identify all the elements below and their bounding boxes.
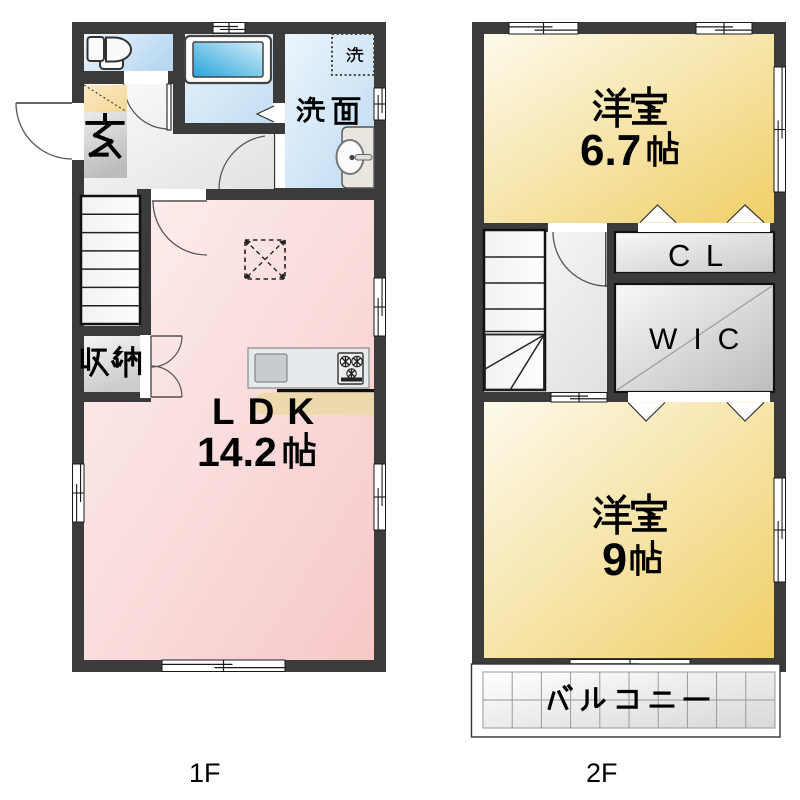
- svg-text:1F: 1F: [189, 758, 221, 788]
- svg-text:2F: 2F: [586, 758, 618, 788]
- svg-text:9: 9: [602, 534, 627, 585]
- svg-text:WIC: WIC: [649, 323, 755, 356]
- svg-text:LDK: LDK: [212, 391, 327, 432]
- svg-text:14.2: 14.2: [197, 429, 277, 475]
- svg-text:CL: CL: [668, 238, 739, 273]
- svg-text:6.7: 6.7: [580, 126, 641, 175]
